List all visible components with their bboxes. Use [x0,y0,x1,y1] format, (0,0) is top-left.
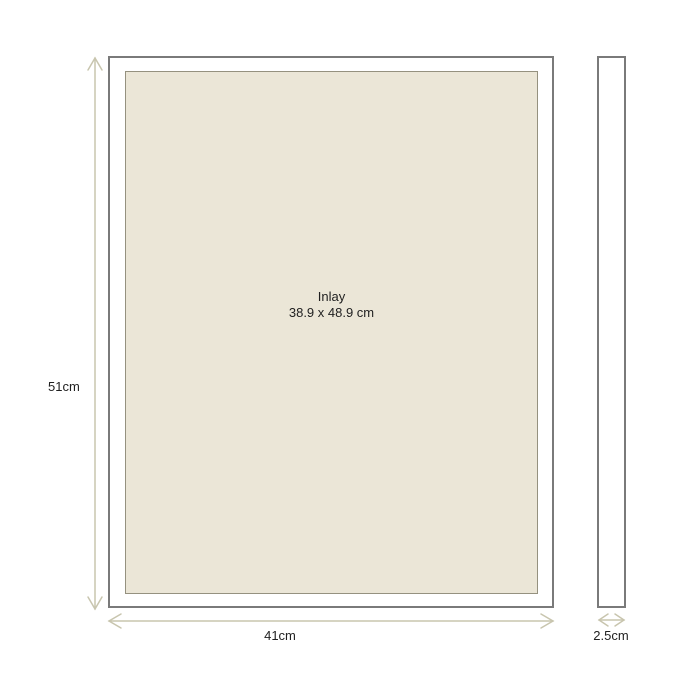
depth-dimension-label: 2.5cm [586,629,636,642]
depth-dimension-arrow [599,614,624,626]
frame-dimension-diagram: Inlay 38.9 x 48.9 cm 51cm 41cm 2.5cm [0,0,700,700]
width-dimension-label: 41cm [255,629,305,642]
frame-inlay: Inlay 38.9 x 48.9 cm [125,71,538,594]
inlay-label: Inlay [126,289,537,305]
inlay-label-block: Inlay 38.9 x 48.9 cm [126,289,537,321]
arrow-left-icon [109,614,121,628]
inlay-size-label: 38.9 x 48.9 cm [126,305,537,321]
height-dimension-label: 51cm [48,380,78,393]
arrow-right-icon [615,614,624,626]
frame-side-view [597,56,626,608]
width-dimension-arrow [109,614,553,628]
arrow-right-icon [541,614,553,628]
arrow-left-icon [599,614,608,626]
arrow-up-icon [88,58,102,70]
frame-front-view: Inlay 38.9 x 48.9 cm [108,56,554,608]
arrow-down-icon [88,597,102,609]
height-dimension-arrow [88,58,102,609]
